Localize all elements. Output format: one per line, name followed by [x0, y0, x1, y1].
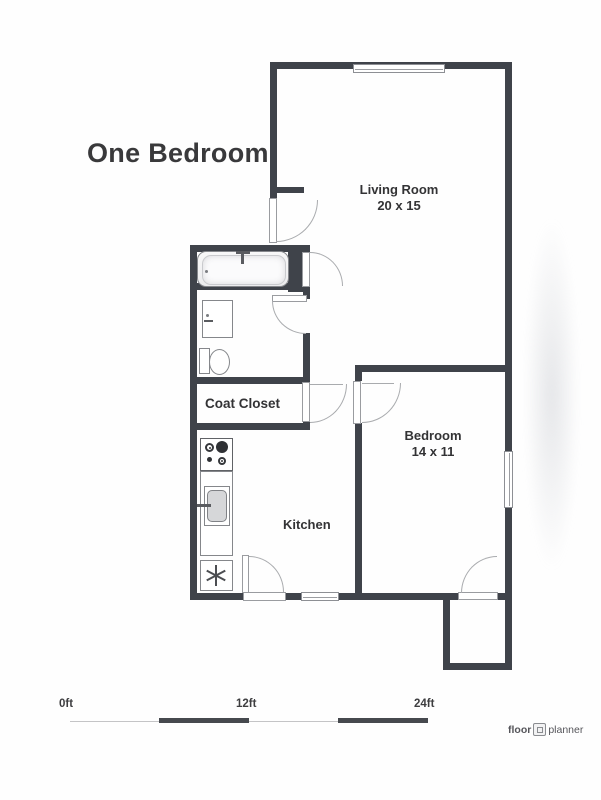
floorplanner-logo-icon: [533, 723, 546, 736]
bathtub-basin: [202, 255, 286, 285]
bathtub-faucet-stem: [241, 251, 244, 264]
bedroom-name: Bedroom: [383, 428, 483, 444]
scale-bar-segment: [338, 718, 428, 723]
floor-plan: One Bedroom: [0, 0, 601, 800]
balcony-door-swing-arc: [461, 556, 497, 593]
stove-burner: [218, 457, 226, 465]
kitchen-sink-faucet: [197, 504, 211, 507]
bedroom-size: 14 x 11: [383, 444, 483, 460]
kitchen-label: Kitchen: [283, 517, 331, 532]
balcony-door-leaf: [458, 592, 498, 600]
wall-bedroom-west-lower: [355, 423, 362, 600]
entry-door-swing-arc: [276, 200, 318, 242]
scale-label-12ft: 12ft: [236, 698, 256, 710]
living-room-name: Living Room: [340, 182, 458, 198]
coat-closet-door-swing-arc: [310, 384, 347, 423]
plan-title: One Bedroom: [87, 138, 269, 169]
stove-burner: [207, 457, 212, 462]
stove-burner: [216, 441, 228, 453]
wall-bedroom-top: [355, 365, 512, 372]
scale-label-0ft: 0ft: [59, 698, 73, 710]
bathroom-sink-faucet: [204, 320, 213, 322]
scale-label-24ft: 24ft: [414, 698, 434, 710]
floorplanner-logo: floor planner: [508, 723, 583, 736]
kitchen-door-leaf: [242, 555, 249, 593]
bedroom-door-leaf: [353, 381, 361, 424]
kitchen-door-swing-arc: [249, 556, 284, 592]
scan-smudge: [505, 165, 590, 675]
linen-closet-door-swing-arc: [310, 252, 343, 286]
bathroom-door-swing-arc: [272, 301, 306, 334]
bedroom-door-swing-arc: [362, 383, 401, 423]
bathroom-sink-icon: [202, 300, 233, 338]
wall-balcony-bottom: [443, 663, 512, 670]
logo-text-floor: floor: [508, 724, 531, 736]
wall-balcony-right: [505, 593, 512, 670]
logo-text-planner: planner: [548, 724, 583, 736]
toilet-bowl-icon: [209, 349, 230, 375]
wall-entry-stub: [277, 187, 304, 193]
bathtub-drain: [205, 270, 208, 273]
wall-closet-bottom: [190, 423, 310, 430]
living-room-label: Living Room 20 x 15: [340, 182, 458, 214]
living-room-size: 20 x 15: [340, 198, 458, 214]
coat-closet-label: Coat Closet: [205, 396, 280, 411]
stove-burner: [205, 443, 214, 452]
window-bedroom-east: [504, 451, 513, 508]
window-living-top: [353, 64, 445, 73]
wall-right: [505, 62, 512, 593]
kitchen-door-sill: [243, 592, 286, 601]
wall-bedroom-west-upper: [355, 365, 362, 381]
wall-chase: [288, 245, 303, 292]
linen-closet-door-leaf: [302, 252, 310, 287]
bathroom-sink-handle: [206, 314, 209, 317]
wall-balcony-left: [443, 593, 450, 670]
coat-closet-door-leaf: [302, 382, 310, 422]
wall-closet-top: [190, 377, 310, 384]
scale-bar-segment: [159, 718, 249, 723]
wall-living-left: [270, 62, 277, 199]
bedroom-label: Bedroom 14 x 11: [383, 428, 483, 460]
window-kitchen-south: [301, 592, 339, 601]
